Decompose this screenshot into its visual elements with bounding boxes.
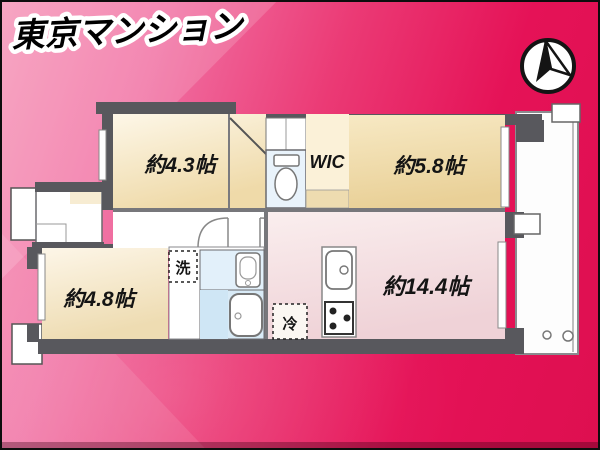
washroom (200, 250, 264, 290)
bedroom-2-label: 約5.8帖 (393, 154, 467, 178)
interior-wall (264, 212, 268, 339)
balcony-drain-icon (543, 331, 551, 339)
bathtub-icon (230, 294, 262, 336)
kitchen-unit (322, 247, 356, 337)
fridge-label: 冷 (282, 315, 297, 333)
listing-image: 約4.3帖 WIC 約5.8帖 約4.8帖 約14.4帖 洗 冷 東京マンション (0, 0, 600, 450)
toilet-icon (274, 155, 299, 200)
wic-label: WIC (310, 152, 346, 172)
balcony-drain-icon (563, 331, 573, 341)
stove-icon (325, 302, 353, 334)
bedroom-1-label: 約4.3帖 (144, 153, 218, 177)
brand-logo: 東京マンション (2, 2, 252, 58)
interior-wall (113, 208, 505, 212)
washer-label: 洗 (175, 259, 190, 277)
hallway (113, 208, 266, 250)
kitchen-sink-icon (326, 251, 352, 289)
washbasin-icon (236, 253, 260, 287)
bedroom-3-label: 約4.8帖 (63, 287, 137, 311)
bathroom (200, 290, 264, 339)
entrance-porch (36, 190, 102, 244)
toilet-room (266, 150, 306, 208)
floor-plan: 約4.3帖 WIC 約5.8帖 約4.8帖 約14.4帖 洗 冷 (2, 2, 600, 450)
ldk-label: 約14.4帖 (383, 274, 474, 299)
compass-north-icon (513, 31, 583, 101)
balcony-partition (552, 104, 580, 122)
bottom-shade (2, 442, 598, 448)
wall-notch (514, 214, 540, 234)
brand-logo-text: 東京マンション (11, 7, 246, 54)
